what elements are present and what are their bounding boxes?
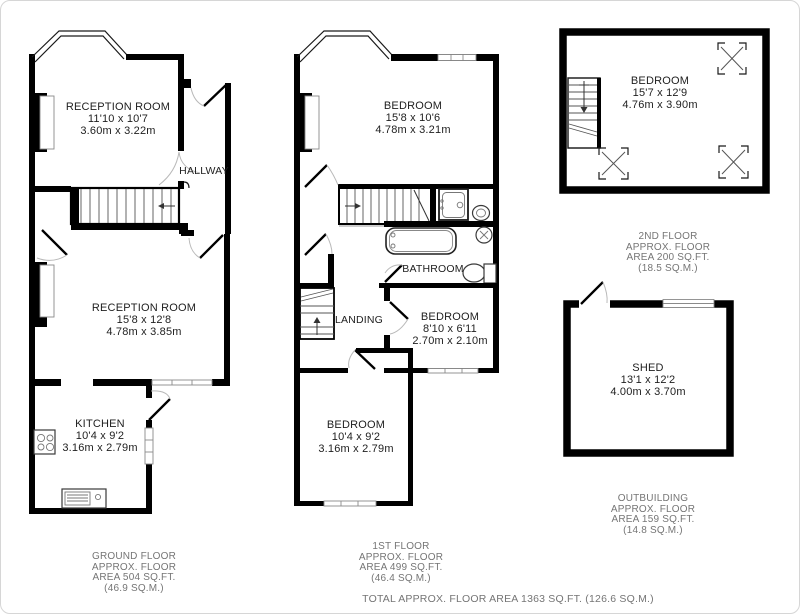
ground-floor-area-label: GROUND FLOOR APPROX. FLOOR AREA 504 SQ.F… xyxy=(92,552,176,594)
basin-lower xyxy=(476,227,492,243)
room-dim-imperial: 10'4 x 9'2 xyxy=(62,430,137,442)
room-dim-imperial: 8'10 x 6'11 xyxy=(412,323,487,335)
understairs-door xyxy=(37,230,67,260)
room-label-reception-rear: RECEPTION ROOM 15'8 x 12'8 4.78m x 3.85m xyxy=(92,302,196,338)
room-dim-imperial: 15'7 x 12'9 xyxy=(622,87,697,99)
floor-label-line: GROUND FLOOR xyxy=(92,552,176,563)
floor-label-line: 1ST FLOOR xyxy=(359,542,443,553)
room-dim-metric: 4.78m x 3.21m xyxy=(375,124,450,136)
floor-label-line: (14.8 SQ.M.) xyxy=(611,526,695,537)
second-floor-plan xyxy=(563,32,766,190)
room-name: LANDING xyxy=(335,314,383,326)
room-name: BEDROOM xyxy=(412,311,487,323)
room-dim-imperial: 13'1 x 12'2 xyxy=(610,374,685,386)
room-label-kitchen: KITCHEN 10'4 x 9'2 3.16m x 2.79m xyxy=(62,418,137,454)
room-label-bathroom: BATHROOM xyxy=(402,263,464,275)
room-dim-metric: 4.78m x 3.85m xyxy=(92,326,196,338)
room-label-bedroom-second: BEDROOM 15'7 x 12'9 4.76m x 3.90m xyxy=(622,75,697,111)
room-dim-imperial: 11'10 x 10'7 xyxy=(66,113,170,125)
bay-window-outline xyxy=(32,31,127,57)
reception-rear-window xyxy=(34,262,54,327)
room-dim-metric: 3.16m x 2.79m xyxy=(62,442,137,454)
room-label-bedroom-rear: BEDROOM 10'4 x 9'2 3.16m x 2.79m xyxy=(318,419,393,455)
front-bedroom-side-window xyxy=(300,93,319,152)
reception-rear-rear-window xyxy=(152,380,212,385)
room-name: BEDROOM xyxy=(375,100,450,112)
rear-reception-door xyxy=(189,235,223,258)
floorplan-page: RECEPTION ROOM 11'10 x 10'7 3.60m x 3.22… xyxy=(0,0,800,614)
kitchen-back-door xyxy=(149,391,170,420)
hob xyxy=(34,430,55,454)
first-floor-stairs xyxy=(339,188,431,226)
rear-bedroom-window xyxy=(324,501,376,506)
bay-window-outline xyxy=(297,31,392,57)
room-dim-metric: 4.76m x 3.90m xyxy=(622,99,697,111)
basin-upper xyxy=(473,206,490,221)
room-dim-metric: 2.70m x 2.10m xyxy=(412,335,487,347)
room-name: KITCHEN xyxy=(62,418,137,430)
floor-label-line: AREA 159 SQ.FT. xyxy=(611,515,695,526)
front-bedroom-window xyxy=(438,55,476,61)
room-label-landing: LANDING xyxy=(335,314,383,326)
outbuilding-area-label: OUTBUILDING APPROX. FLOOR AREA 159 SQ.FT… xyxy=(611,494,695,536)
first-floor-area-label: 1ST FLOOR APPROX. FLOOR AREA 499 SQ.FT. … xyxy=(359,542,443,584)
corridor-door xyxy=(305,234,332,255)
kitchen-window xyxy=(145,428,153,464)
front-door xyxy=(191,84,227,106)
floor-label-line: (46.9 SQ.M.) xyxy=(92,584,176,595)
floor-label-line: AREA 504 SQ.FT. xyxy=(92,573,176,584)
room-name: BEDROOM xyxy=(622,75,697,87)
total-area-label: TOTAL APPROX. FLOOR AREA 1363 SQ.FT. (12… xyxy=(362,593,654,605)
floor-label-line: (18.5 SQ.M.) xyxy=(626,264,710,275)
room-name: BATHROOM xyxy=(402,263,464,275)
room-name: BEDROOM xyxy=(318,419,393,431)
room-label-reception-front: RECEPTION ROOM 11'10 x 10'7 3.60m x 3.22… xyxy=(66,101,170,137)
room-name: HALLWAY xyxy=(179,165,229,177)
ground-stairs xyxy=(71,188,179,224)
floor-label-line: AREA 200 SQ.FT. xyxy=(626,253,710,264)
room-dim-metric: 4.00m x 3.70m xyxy=(610,386,685,398)
front-bedroom-door xyxy=(305,165,338,187)
kitchen-sink xyxy=(62,489,106,508)
room-name: RECEPTION ROOM xyxy=(66,101,170,113)
room-label-bedroom-middle: BEDROOM 8'10 x 6'11 2.70m x 2.10m xyxy=(412,311,487,347)
floor-label-line: OUTBUILDING xyxy=(611,494,695,505)
bath xyxy=(386,228,456,254)
room-label-hallway: HALLWAY xyxy=(179,165,229,177)
room-dim-imperial: 15'8 x 10'6 xyxy=(375,112,450,124)
floor-label-line: AREA 499 SQ.FT. xyxy=(359,563,443,574)
room-dim-imperial: 15'8 x 12'8 xyxy=(92,314,196,326)
shed-window xyxy=(663,300,714,308)
room-label-bedroom-front: BEDROOM 15'8 x 10'6 4.78m x 3.21m xyxy=(375,100,450,136)
toilet xyxy=(463,264,496,283)
landing-stairs xyxy=(300,288,334,339)
room-name: SHED xyxy=(610,362,685,374)
room-label-shed: SHED 13'1 x 12'2 4.00m x 3.70m xyxy=(610,362,685,398)
middle-bedroom-window xyxy=(428,369,478,374)
second-floor-area-label: 2ND FLOOR APPROX. FLOOR AREA 200 SQ.FT. … xyxy=(626,232,710,274)
bathroom-door xyxy=(385,265,402,282)
second-floor-stairs xyxy=(568,78,601,148)
middle-bedroom-door xyxy=(390,302,408,334)
floor-label-line: 2ND FLOOR xyxy=(626,232,710,243)
room-dim-metric: 3.16m x 2.79m xyxy=(318,443,393,455)
room-name: RECEPTION ROOM xyxy=(92,302,196,314)
room-dim-imperial: 10'4 x 9'2 xyxy=(318,431,393,443)
shower-unit xyxy=(439,189,468,220)
floor-label-line: (46.4 SQ.M.) xyxy=(359,574,443,585)
reception-front-window xyxy=(34,93,54,152)
room-dim-metric: 3.60m x 3.22m xyxy=(66,125,170,137)
